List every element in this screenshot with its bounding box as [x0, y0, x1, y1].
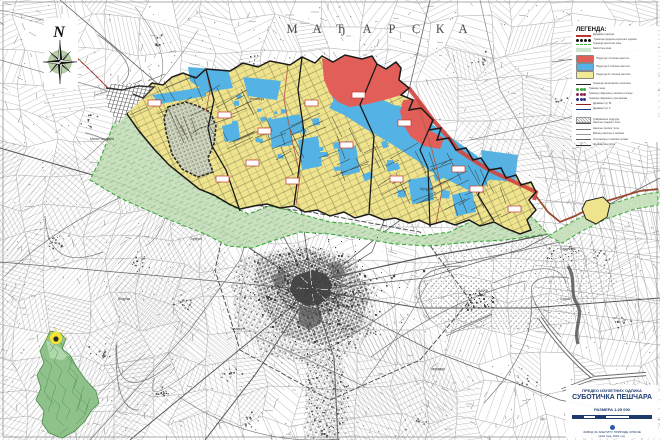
svg-text:А: А: [458, 22, 467, 36]
svg-text:М: М: [286, 22, 297, 36]
svg-text:А: А: [312, 22, 321, 36]
svg-text:Жедник: Жедник: [118, 297, 131, 301]
svg-text:N: N: [52, 24, 66, 41]
svg-text:Р: Р: [389, 22, 396, 36]
svg-text:Таванкут: Таванкут: [230, 327, 245, 331]
svg-text:С: С: [412, 22, 420, 36]
svg-text:Мала Пешчара: Мала Пешчара: [90, 137, 114, 141]
svg-text:Ђ: Ђ: [336, 22, 345, 36]
svg-text:СУБОТИЦА: СУБОТИЦА: [330, 293, 349, 297]
svg-text:Лудаш: Лудаш: [560, 297, 571, 301]
svg-text:Ђурђин: Ђурђин: [190, 237, 202, 241]
svg-text:Келебија: Келебија: [250, 97, 264, 101]
svg-text:Шупљак: Шупљак: [420, 187, 434, 191]
svg-text:Хајдуково: Хајдуково: [560, 247, 576, 251]
svg-text:Чантавир: Чантавир: [430, 367, 445, 371]
svg-text:А: А: [362, 22, 371, 36]
svg-text:Ор: Ор: [540, 417, 545, 421]
svg-text:К: К: [436, 22, 445, 36]
svg-text:ПАЛИЋ: ПАЛИЋ: [476, 289, 488, 293]
